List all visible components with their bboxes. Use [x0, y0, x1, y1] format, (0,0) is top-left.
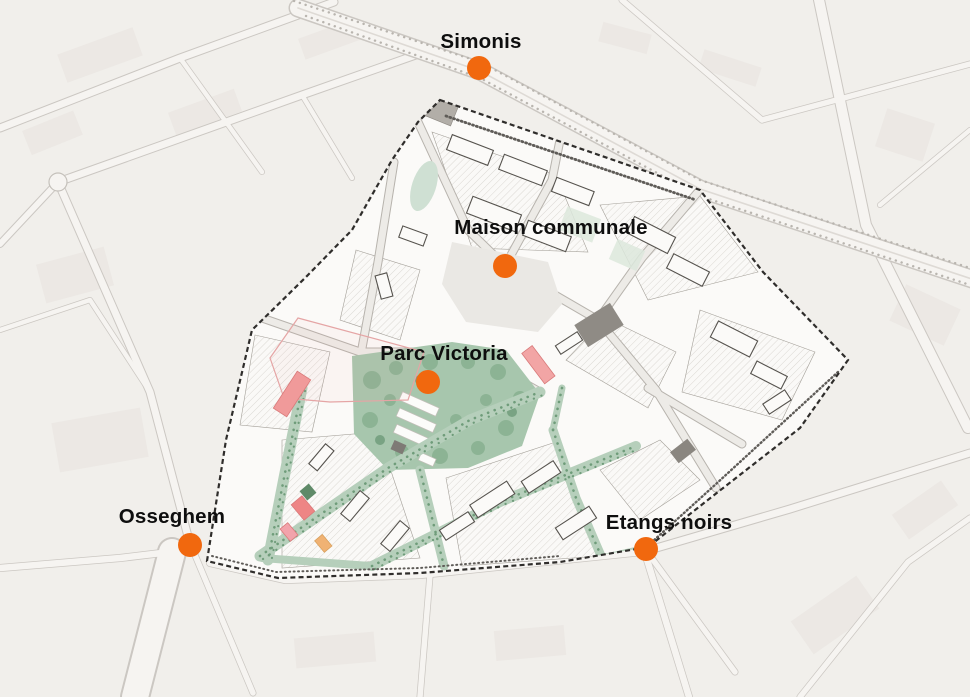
- roundabout: [49, 173, 67, 191]
- station-label-maison-communale: Maison communale: [454, 216, 647, 240]
- station-dot-parc-victoria: [416, 370, 440, 394]
- station-label-parc-victoria: Parc Victoria: [380, 342, 508, 366]
- map-canvas: SimonisMaison communaleParc VictoriaOsse…: [0, 0, 970, 697]
- station-dot-etangs-noirs: [634, 537, 658, 561]
- station-dot-osseghem: [178, 533, 202, 557]
- station-label-osseghem: Osseghem: [119, 505, 225, 529]
- station-label-simonis: Simonis: [440, 30, 521, 54]
- station-dot-maison-communale: [493, 254, 517, 278]
- station-label-etangs-noirs: Etangs noirs: [606, 511, 733, 535]
- station-dot-simonis: [467, 56, 491, 80]
